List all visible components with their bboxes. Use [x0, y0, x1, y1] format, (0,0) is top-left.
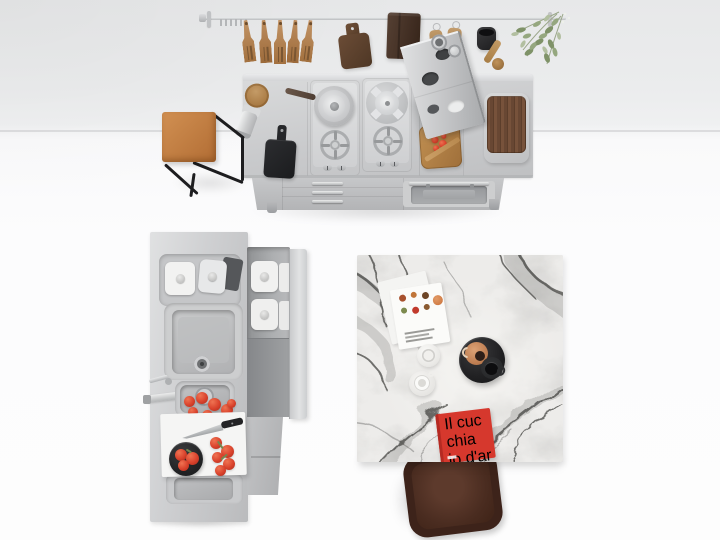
marble-table: Il cuc chia io d'ar gen to.: [357, 255, 563, 462]
large-sink: [164, 303, 243, 380]
rail-bracket: [207, 11, 211, 27]
tomato: [227, 399, 236, 408]
hanging-plant: [497, 0, 585, 70]
stool-frame-bar: [241, 137, 244, 181]
cup-handle: [428, 372, 434, 377]
hob-knob: [323, 164, 332, 171]
lid-container: [165, 262, 195, 295]
faucet-hinge: [165, 378, 172, 385]
oven-handle: [409, 182, 489, 185]
food-photo-dot: [412, 306, 420, 314]
island-foot: [267, 202, 277, 213]
drawer-container: [251, 299, 278, 330]
cookbook-title-line: cuc: [456, 412, 483, 432]
cookbook-title: Il cuc chia io d'ar gen to.: [443, 411, 492, 460]
cookbook-title-line: d'ar: [465, 447, 493, 462]
sink-drain: [194, 356, 210, 372]
saucer: [409, 371, 435, 396]
food-photo-dot: [399, 294, 407, 302]
saucepan: [314, 86, 354, 126]
hob-knob: [390, 160, 399, 167]
jug-handle: [460, 345, 476, 361]
food-photo-dot: [423, 304, 430, 311]
walnut-lid: [487, 96, 526, 153]
island-foot: [489, 199, 499, 210]
hob-knob: [376, 160, 385, 167]
cookbook-title-line: Il: [443, 416, 453, 434]
bottom-sink: [166, 474, 243, 504]
shelf-hole: [426, 103, 440, 115]
food-photo-dot: [410, 291, 417, 298]
shelf-hole: [420, 70, 440, 87]
hanging-board: [336, 21, 372, 69]
tomato: [208, 398, 221, 411]
tomato: [196, 392, 208, 404]
drawer-handle: [312, 200, 343, 203]
food-photo-dot: [432, 294, 443, 305]
food-photo-dot: [421, 292, 429, 300]
walnut-box: [484, 93, 529, 163]
faucet-tip: [143, 395, 151, 404]
tomato: [184, 396, 195, 407]
hob-module: [362, 78, 412, 172]
burner-grate: [320, 130, 350, 160]
drawer-container: [251, 261, 278, 292]
burner-grate: [373, 126, 403, 156]
food-photo-dot: [401, 307, 408, 314]
photo-stage: Il cuc chia io d'ar gen to.: [0, 0, 720, 540]
rail-finial: [199, 14, 206, 22]
tomato: [178, 460, 189, 471]
white-cup: [417, 344, 440, 367]
stool-seat: [162, 112, 216, 162]
shelf-dish: [446, 98, 466, 114]
black-mug: [481, 357, 503, 379]
drawer-handle: [312, 182, 343, 185]
black-paddle-board: [263, 124, 298, 179]
drawer-handle: [312, 191, 343, 194]
hob-knob: [337, 164, 346, 171]
oven-door: [403, 181, 495, 207]
unit-side-face: [247, 417, 283, 495]
red-cookbook: Il cuc chia io d'ar gen to.: [435, 408, 496, 462]
open-drawer-front: [289, 249, 307, 419]
black-tray: [459, 337, 505, 383]
kettle: [366, 82, 408, 124]
tomato: [215, 465, 226, 476]
lid-container: [198, 259, 228, 294]
